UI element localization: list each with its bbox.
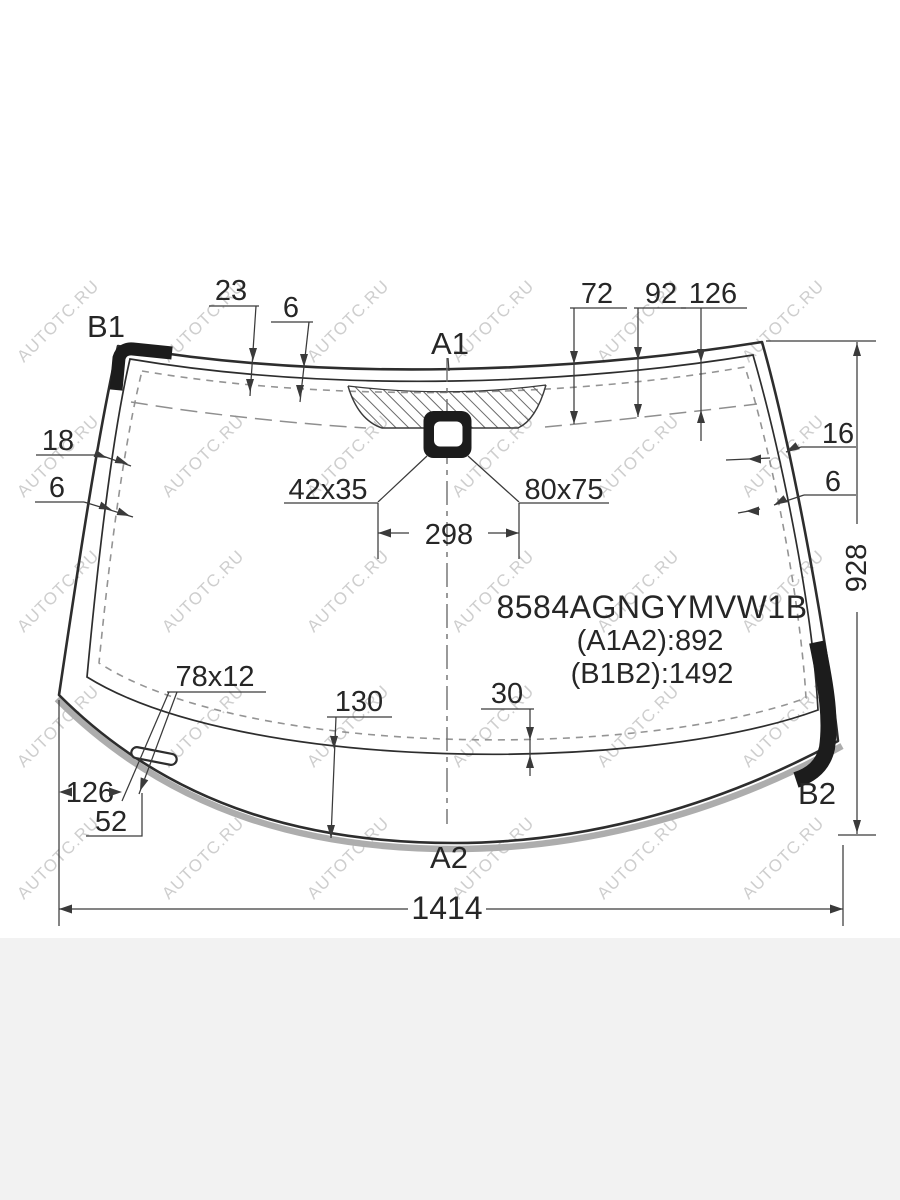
dim-height-928: 928	[841, 544, 873, 592]
label-b1: B1	[87, 309, 125, 344]
dim-width-298: 298	[425, 519, 473, 551]
dim-bottom-130: 130	[335, 686, 383, 718]
footer-band	[0, 938, 900, 1200]
dim-right-6: 6	[825, 466, 841, 498]
dim-slot-78x12: 78x12	[175, 661, 254, 693]
dim-left-18: 18	[42, 425, 74, 457]
dim-bottom-126: 126	[66, 777, 114, 809]
dim-left-6: 6	[49, 472, 65, 504]
dim-top-92: 92	[645, 278, 677, 310]
part-b1b2-length: (B1B2):1492	[571, 658, 734, 690]
dim-top-126: 126	[689, 278, 737, 310]
dim-bracket-80x75: 80x75	[524, 474, 603, 506]
part-a1a2-length: (A1A2):892	[577, 625, 724, 657]
windshield-technical-drawing: AUTOTC.RUAUTOTC.RUAUTOTC.RUAUTOTC.RUAUTO…	[0, 0, 900, 1200]
dim-right-16: 16	[822, 418, 854, 450]
part-number: 8584AGNGYMVW1B	[496, 589, 807, 625]
drawing-canvas: AUTOTC.RUAUTOTC.RUAUTOTC.RUAUTOTC.RUAUTO…	[0, 0, 900, 1200]
label-a2: A2	[430, 840, 468, 875]
dim-bottom-52: 52	[95, 806, 127, 838]
dim-top-23: 23	[215, 275, 247, 307]
dim-top-6: 6	[283, 292, 299, 324]
dim-width-1414: 1414	[411, 890, 482, 926]
dim-bottom-30: 30	[491, 678, 523, 710]
dim-bracket-42x35: 42x35	[288, 474, 367, 506]
label-b2: B2	[798, 776, 836, 811]
label-a1: A1	[431, 326, 469, 361]
sensor-mount-window	[434, 422, 463, 447]
dim-top-72: 72	[581, 278, 613, 310]
